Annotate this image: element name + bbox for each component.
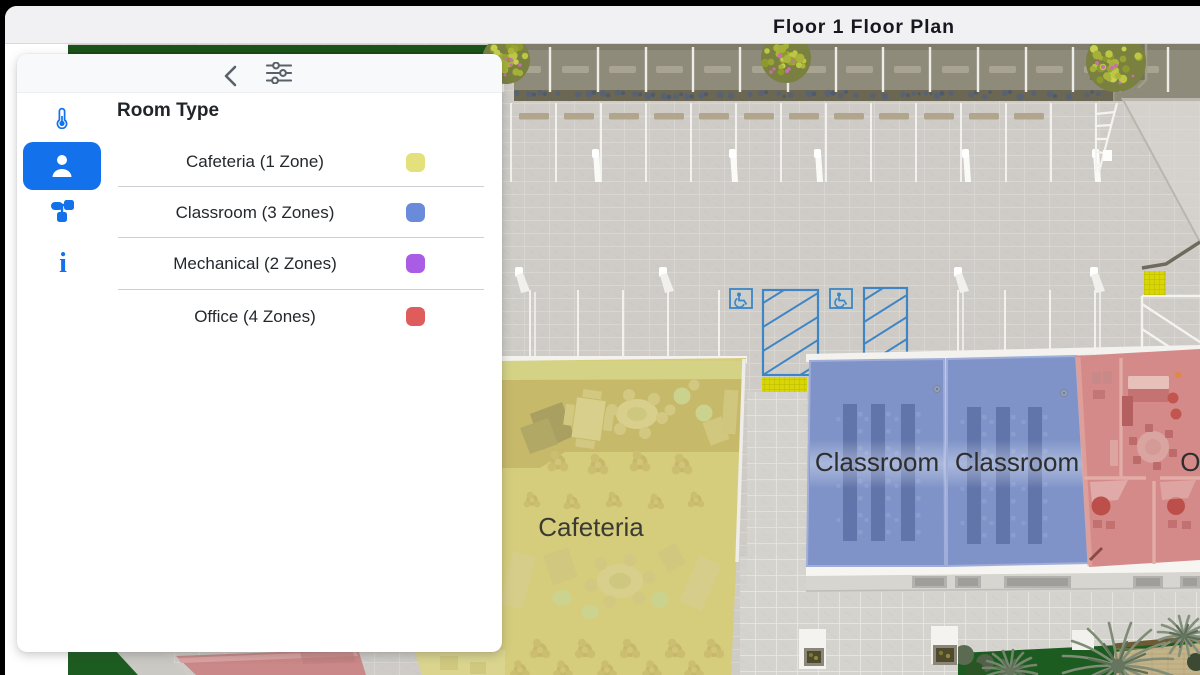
svg-text:Cafeteria: Cafeteria [538, 512, 644, 542]
svg-text:Office: Office [1180, 447, 1200, 477]
svg-text:Classroom: Classroom [815, 447, 939, 477]
svg-text:Classroom: Classroom [955, 447, 1079, 477]
